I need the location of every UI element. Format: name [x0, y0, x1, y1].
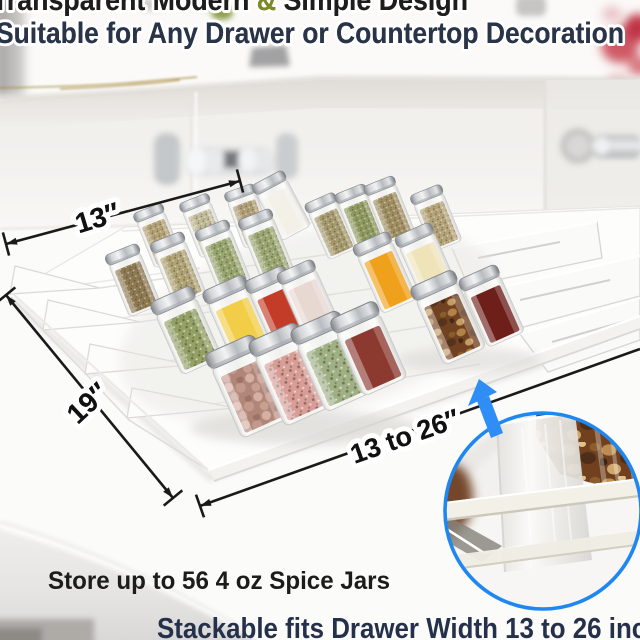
svg-text:Store up to 56 4 oz Spice Jars: Store up to 56 4 oz Spice Jars	[48, 567, 390, 595]
svg-text:Stackable fits Drawer Width 13: Stackable fits Drawer Width 13 to 26 inc…	[157, 613, 640, 640]
svg-text:Transparent Modern & Simple D: Transparent Modern & Simple Design	[0, 0, 468, 17]
svg-text:Suitable for Any Drawer or Cou: Suitable for Any Drawer or Countertop De…	[0, 17, 624, 50]
